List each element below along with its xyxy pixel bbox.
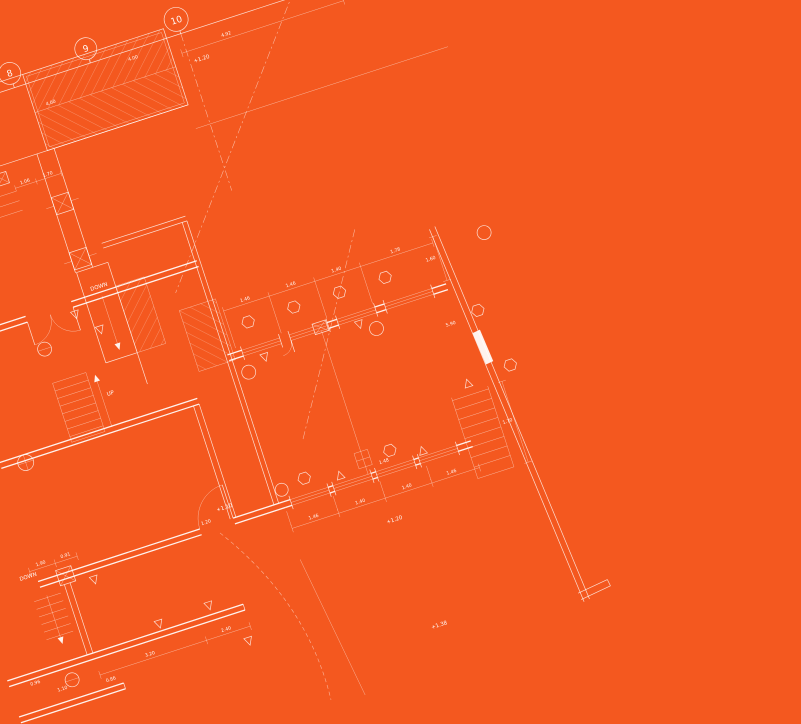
floor-plan-canvas: 8 9 10 1.06 [0,0,801,724]
